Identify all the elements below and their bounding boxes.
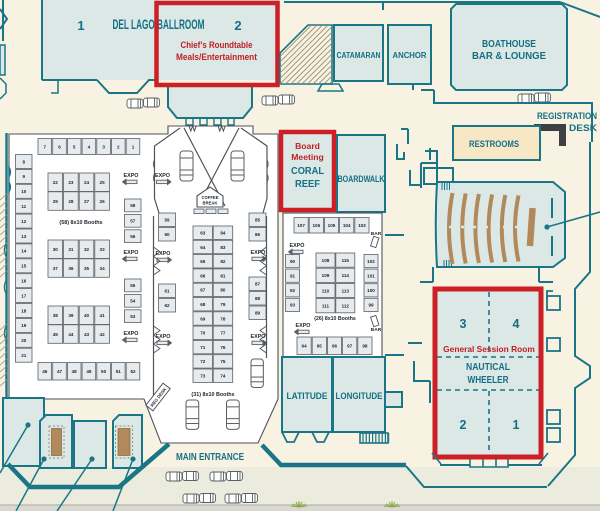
svg-text:99: 99 bbox=[368, 303, 374, 308]
svg-text:BAR: BAR bbox=[371, 327, 382, 333]
svg-text:50: 50 bbox=[101, 369, 107, 374]
svg-text:78: 78 bbox=[220, 316, 226, 321]
svg-text:30: 30 bbox=[53, 247, 59, 252]
svg-text:1: 1 bbox=[132, 144, 135, 149]
svg-text:51: 51 bbox=[116, 369, 122, 374]
svg-text:26: 26 bbox=[100, 199, 106, 204]
svg-text:(26) 8x10 Booths: (26) 8x10 Booths bbox=[314, 316, 356, 322]
svg-text:ANCHOR: ANCHOR bbox=[393, 50, 428, 60]
svg-text:37: 37 bbox=[53, 266, 59, 271]
svg-text:44: 44 bbox=[68, 332, 74, 337]
svg-text:Meeting: Meeting bbox=[291, 152, 323, 162]
svg-text:General Session Room: General Session Room bbox=[443, 344, 535, 354]
svg-text:71: 71 bbox=[200, 345, 206, 350]
svg-text:6: 6 bbox=[58, 144, 61, 149]
svg-text:CATAMARAN: CATAMARAN bbox=[337, 50, 381, 60]
svg-text:53: 53 bbox=[130, 314, 136, 319]
svg-text:3: 3 bbox=[102, 144, 105, 149]
svg-text:EXPO: EXPO bbox=[124, 173, 139, 179]
svg-text:113: 113 bbox=[342, 288, 350, 293]
svg-text:Meals/Entertainment: Meals/Entertainment bbox=[176, 52, 257, 62]
svg-text:77: 77 bbox=[220, 331, 226, 336]
svg-text:104: 104 bbox=[343, 223, 351, 228]
svg-text:84: 84 bbox=[220, 231, 226, 236]
svg-text:86: 86 bbox=[255, 232, 261, 237]
svg-text:EXPO: EXPO bbox=[290, 243, 305, 249]
svg-text:56: 56 bbox=[130, 234, 136, 239]
svg-text:(31) 8x10 Booths: (31) 8x10 Booths bbox=[191, 392, 234, 398]
svg-text:2: 2 bbox=[117, 144, 120, 149]
svg-text:34: 34 bbox=[100, 266, 106, 271]
svg-text:4: 4 bbox=[88, 144, 91, 149]
svg-text:48: 48 bbox=[72, 369, 78, 374]
svg-text:Chief’s Roundtable: Chief’s Roundtable bbox=[181, 40, 253, 50]
svg-text:42: 42 bbox=[100, 332, 106, 337]
svg-text:115: 115 bbox=[342, 258, 350, 263]
svg-text:80: 80 bbox=[220, 288, 226, 293]
svg-text:106: 106 bbox=[312, 223, 320, 228]
svg-text:52: 52 bbox=[130, 369, 136, 374]
svg-text:28: 28 bbox=[68, 199, 74, 204]
svg-text:107: 107 bbox=[297, 223, 305, 228]
svg-text:WHEELER: WHEELER bbox=[468, 375, 510, 386]
svg-text:81: 81 bbox=[220, 273, 226, 278]
svg-text:EXPO: EXPO bbox=[296, 323, 311, 329]
svg-text:LATITUDE: LATITUDE bbox=[287, 391, 328, 401]
svg-text:82: 82 bbox=[220, 259, 226, 264]
svg-text:36: 36 bbox=[68, 266, 74, 271]
svg-text:Board: Board bbox=[295, 141, 320, 151]
svg-text:98: 98 bbox=[362, 344, 368, 349]
svg-text:14: 14 bbox=[21, 249, 27, 254]
svg-text:25: 25 bbox=[100, 180, 106, 185]
svg-text:27: 27 bbox=[84, 199, 90, 204]
svg-text:EXPO: EXPO bbox=[155, 173, 170, 179]
svg-text:43: 43 bbox=[84, 332, 90, 337]
svg-text:MAIN ENTRANCE: MAIN ENTRANCE bbox=[176, 451, 244, 463]
svg-text:49: 49 bbox=[86, 369, 92, 374]
svg-text:67: 67 bbox=[200, 288, 206, 293]
svg-text:EXPO: EXPO bbox=[124, 250, 139, 256]
svg-text:23: 23 bbox=[68, 180, 74, 185]
svg-text:112: 112 bbox=[342, 304, 350, 309]
svg-text:91: 91 bbox=[290, 274, 296, 279]
svg-text:69: 69 bbox=[200, 316, 206, 321]
svg-text:58: 58 bbox=[130, 203, 136, 208]
svg-text:55: 55 bbox=[130, 283, 136, 288]
svg-text:CORAL: CORAL bbox=[291, 166, 325, 177]
svg-text:7: 7 bbox=[44, 144, 47, 149]
svg-text:40: 40 bbox=[84, 313, 90, 318]
svg-text:57: 57 bbox=[130, 219, 136, 224]
svg-text:COFFEE: COFFEE bbox=[202, 195, 219, 200]
svg-text:109: 109 bbox=[322, 273, 330, 278]
svg-text:3: 3 bbox=[460, 317, 467, 331]
svg-text:92: 92 bbox=[290, 288, 296, 293]
svg-text:REEF: REEF bbox=[295, 179, 320, 190]
svg-text:83: 83 bbox=[220, 245, 226, 250]
svg-text:BAR: BAR bbox=[371, 231, 382, 237]
svg-text:2: 2 bbox=[460, 418, 467, 432]
svg-text:21: 21 bbox=[21, 353, 27, 358]
svg-text:BAR & LOUNGE: BAR & LOUNGE bbox=[472, 51, 546, 62]
svg-text:60: 60 bbox=[164, 232, 170, 237]
svg-text:13: 13 bbox=[21, 234, 27, 239]
svg-text:35: 35 bbox=[84, 266, 90, 271]
svg-text:90: 90 bbox=[290, 259, 296, 264]
svg-text:12: 12 bbox=[21, 219, 27, 224]
svg-text:39: 39 bbox=[68, 313, 74, 318]
svg-text:EXPO: EXPO bbox=[156, 251, 171, 257]
svg-text:87: 87 bbox=[255, 282, 261, 287]
svg-text:33: 33 bbox=[100, 247, 106, 252]
svg-text:46: 46 bbox=[42, 369, 48, 374]
svg-text:1: 1 bbox=[77, 18, 84, 33]
svg-text:64: 64 bbox=[200, 245, 206, 250]
svg-text:32: 32 bbox=[84, 247, 90, 252]
svg-text:24: 24 bbox=[84, 180, 90, 185]
svg-text:LONGITUDE: LONGITUDE bbox=[336, 391, 383, 401]
svg-text:22: 22 bbox=[53, 180, 59, 185]
svg-text:EXPO: EXPO bbox=[251, 250, 266, 256]
svg-text:10: 10 bbox=[21, 189, 27, 194]
svg-text:75: 75 bbox=[220, 359, 226, 364]
svg-text:EXPO: EXPO bbox=[156, 334, 171, 340]
svg-text:20: 20 bbox=[21, 338, 27, 343]
svg-text:59: 59 bbox=[164, 218, 170, 223]
svg-text:108: 108 bbox=[322, 258, 330, 263]
svg-text:16: 16 bbox=[21, 279, 27, 284]
svg-text:114: 114 bbox=[342, 273, 350, 278]
svg-text:17: 17 bbox=[21, 293, 27, 298]
svg-text:54: 54 bbox=[130, 299, 136, 304]
svg-text:63: 63 bbox=[200, 231, 206, 236]
svg-text:101: 101 bbox=[367, 274, 375, 279]
svg-text:62: 62 bbox=[164, 303, 170, 308]
svg-text:5: 5 bbox=[73, 144, 76, 149]
svg-text:BOARDWALK: BOARDWALK bbox=[338, 174, 386, 184]
svg-text:89: 89 bbox=[255, 311, 261, 316]
svg-text:15: 15 bbox=[21, 264, 27, 269]
svg-text:105: 105 bbox=[328, 223, 336, 228]
svg-text:18: 18 bbox=[21, 308, 27, 313]
svg-text:31: 31 bbox=[68, 247, 74, 252]
svg-text:111: 111 bbox=[322, 304, 330, 309]
svg-text:79: 79 bbox=[220, 302, 226, 307]
svg-text:11: 11 bbox=[21, 204, 26, 209]
svg-text:102: 102 bbox=[367, 259, 375, 264]
svg-text:4: 4 bbox=[513, 317, 520, 331]
svg-text:BOATHOUSE: BOATHOUSE bbox=[482, 39, 536, 50]
svg-text:88: 88 bbox=[255, 296, 261, 301]
svg-text:93: 93 bbox=[290, 303, 296, 308]
svg-text:73: 73 bbox=[200, 374, 206, 379]
svg-text:45: 45 bbox=[53, 332, 59, 337]
svg-text:66: 66 bbox=[200, 273, 206, 278]
svg-text:38: 38 bbox=[53, 313, 59, 318]
svg-text:110: 110 bbox=[322, 288, 330, 293]
svg-text:41: 41 bbox=[100, 313, 106, 318]
svg-text:76: 76 bbox=[220, 345, 226, 350]
svg-text:DESK: DESK bbox=[569, 123, 597, 134]
svg-text:(58) 8x10 Booths: (58) 8x10 Booths bbox=[59, 220, 102, 226]
svg-text:65: 65 bbox=[200, 259, 206, 264]
svg-text:97: 97 bbox=[347, 344, 353, 349]
svg-text:103: 103 bbox=[358, 223, 366, 228]
svg-text:47: 47 bbox=[57, 369, 63, 374]
svg-text:61: 61 bbox=[164, 289, 170, 294]
svg-text:NAUTICAL: NAUTICAL bbox=[466, 362, 510, 373]
svg-text:2: 2 bbox=[234, 18, 241, 33]
svg-text:9: 9 bbox=[22, 174, 25, 179]
svg-text:EXPO: EXPO bbox=[124, 331, 139, 337]
svg-text:BREAK: BREAK bbox=[203, 201, 218, 206]
svg-text:68: 68 bbox=[200, 302, 206, 307]
svg-text:72: 72 bbox=[200, 359, 206, 364]
svg-text:1: 1 bbox=[513, 418, 520, 432]
svg-text:85: 85 bbox=[255, 218, 261, 223]
svg-text:RESTROOMS: RESTROOMS bbox=[469, 139, 519, 149]
svg-text:70: 70 bbox=[200, 331, 206, 336]
svg-text:96: 96 bbox=[332, 344, 338, 349]
svg-text:8: 8 bbox=[22, 159, 25, 164]
svg-text:95: 95 bbox=[317, 344, 323, 349]
svg-text:100: 100 bbox=[367, 288, 375, 293]
svg-text:29: 29 bbox=[53, 199, 59, 204]
svg-text:REGISTRATION: REGISTRATION bbox=[537, 111, 597, 122]
svg-text:74: 74 bbox=[220, 374, 226, 379]
svg-text:94: 94 bbox=[302, 344, 308, 349]
svg-text:19: 19 bbox=[21, 323, 27, 328]
